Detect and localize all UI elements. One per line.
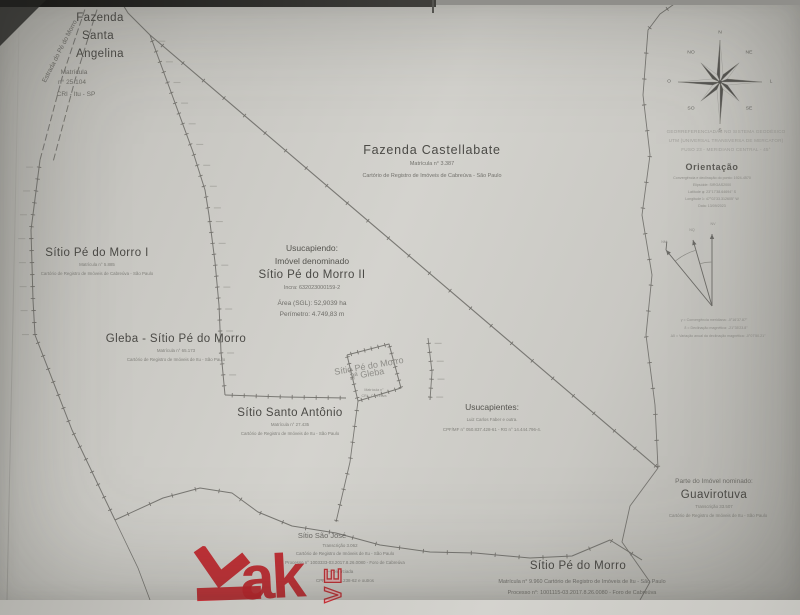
usucapiendo-perimetro: Perímetro: 4.749,83 m xyxy=(280,311,345,318)
usucapiendo-sub: Imóvel denominado xyxy=(275,256,349,266)
parcel-label-pe-do-morro-i: Sítio Pé do Morro I xyxy=(45,247,148,259)
coord-note-1: GEORREFERENCIADAS NO SISTEMA GEODÉSICO xyxy=(667,129,786,134)
parcel-label-santa-angelina-1: Fazenda xyxy=(76,12,124,24)
pe-do-morro-matricula-cartorio: Matrícula n° 9.960 Cartório de Registro … xyxy=(498,578,665,584)
sao-jose-transcricao: Transcrição 3.062 xyxy=(322,543,357,548)
parcel-label-santo-antonio: Sítio Santo Antônio xyxy=(237,407,342,419)
orientacao-line-3: Latitude φ: 23°17'38.64694" S xyxy=(688,190,736,194)
declination-label-nv: NV xyxy=(710,222,715,226)
parcel-label-gleba: Gleba - Sítio Pé do Morro xyxy=(106,333,246,345)
boundary-lines xyxy=(31,0,680,600)
declination-note-3: Δδ = Variação anual da declinação magnét… xyxy=(671,334,766,338)
parcel-label-castellabate: Fazenda Castellabate xyxy=(363,143,501,157)
segunda-gleba-detail-2: CRI - Cabreúva xyxy=(361,394,386,398)
gleba-cartorio: Cartório de Registro de Imóveis de Itu -… xyxy=(127,357,225,362)
usucapientes-names: Luiz Carlos Faber e outra. xyxy=(467,417,518,422)
parcel-label-pe-do-morro-ii: Sítio Pé do Morro II xyxy=(258,269,365,281)
declination-note-1: γ = Convergência meridiana: -0°16'37.87" xyxy=(681,318,748,322)
orientacao-line-1: Convergência e declinação do ponto: 1924… xyxy=(673,176,751,180)
segunda-gleba-detail-1: Matrícula n° xyxy=(364,388,383,392)
coord-note-2: UTM (UNIVERSAL TRANSVERSA DE MERCATOR) xyxy=(669,138,784,143)
survey-tick-marks xyxy=(18,7,668,559)
map-linework xyxy=(0,0,800,600)
compass-label-n: N xyxy=(718,29,722,35)
watermark-vertical-text: VE xyxy=(320,565,348,603)
compass-label-o: O xyxy=(667,78,671,84)
parcel-label-pe-do-morro: Sítio Pé do Morro xyxy=(530,560,626,572)
compass-label-ne: NE xyxy=(746,49,753,55)
santo-antonio-matricula: Matrícula n° 27.435 xyxy=(271,422,309,427)
usucapientes-documents: CPF/MF n° 050.837.428-61 - RG n° 14.444.… xyxy=(443,427,541,432)
santa-angelina-cri: CRI - Itu - SP xyxy=(57,91,96,98)
orientacao-line-4: Longitude λ: 47°02'33.312605" W xyxy=(685,197,738,201)
usucapiendo-header: Usucapiendo: xyxy=(286,243,338,253)
guavirotuva-pre: Parte do Imóvel nominado: xyxy=(675,478,753,485)
compass-label-se: SE xyxy=(746,105,753,111)
survey-map-photo: { "colors": {"ink":"#4b4a46","ink_light"… xyxy=(0,0,800,600)
coord-note-3: FUSO 23 - MERIDIANO CENTRAL - 45° xyxy=(681,147,770,152)
usucapientes-title: Usucapientes: xyxy=(465,402,519,412)
castellabate-cartorio: Cartório de Registro de Imóveis de Cabre… xyxy=(362,172,501,178)
pe-do-morro-i-cartorio: Cartório de Registro de Imóveis de Cabre… xyxy=(41,271,154,276)
orientacao-line-5: Data: 13/09/2023 xyxy=(698,204,726,208)
watermark-letters: ak xyxy=(238,540,305,614)
guavirotuva-cartorio: Cartório de Registro de Imóveis de Itu -… xyxy=(669,513,767,518)
declination-label-nm: NM xyxy=(661,240,667,244)
compass-label-so: SO xyxy=(687,105,694,111)
usucapiendo-area: Área (SGL): 52,9039 ha xyxy=(277,300,346,307)
castellabate-matricula: Matrícula n° 3.387 xyxy=(410,160,454,166)
parcel-label-sao-jose: Sítio São José xyxy=(298,531,346,540)
pe-do-morro-processo: Processo n°: 1001115-03.2017.8.26.0080 -… xyxy=(508,589,657,595)
santa-angelina-matricula-word: Matrícula xyxy=(61,69,88,76)
declination-label-nq: NQ xyxy=(689,228,694,232)
photo-edge-top xyxy=(0,0,436,7)
map-frame-left-line xyxy=(7,30,19,600)
compass-label-no: NO xyxy=(687,49,694,55)
guavirotuva-transcricao: Transcrição 33.507 xyxy=(695,504,733,509)
pe-do-morro-i-matricula: Matrícula n° 5.885 xyxy=(79,262,115,267)
orientacao-title: Orientação xyxy=(685,162,738,172)
compass-label-l: L xyxy=(770,78,773,84)
paper-fold-mark xyxy=(432,0,434,13)
sao-jose-cartorio: Cartório de Registro de Imóveis de Itu -… xyxy=(296,551,394,556)
photo-edge-top-right xyxy=(436,0,800,5)
declination-arrows-icon xyxy=(666,234,714,306)
parcel-label-santa-angelina-2: Santa xyxy=(82,30,114,42)
usucapiendo-incra: Incra: 632023000159-2 xyxy=(284,284,340,290)
santo-antonio-cartorio: Cartório de Registro de Imóveis de Itu -… xyxy=(241,431,339,436)
declination-note-2: δ = Declinação magnética: -21°35'23.8" xyxy=(684,326,747,330)
santa-angelina-matricula-number: n° 25.104 xyxy=(58,79,86,86)
orientacao-line-2: Elipsóide: SIRGAS2000 xyxy=(693,183,731,187)
gleba-matricula: Matrícula n° 65.173 xyxy=(157,348,195,353)
parcel-label-santa-angelina-3: Angelina xyxy=(76,48,124,60)
watermark-bar xyxy=(197,586,261,601)
parcel-label-guavirotuva: Guavirotuva xyxy=(681,489,747,501)
